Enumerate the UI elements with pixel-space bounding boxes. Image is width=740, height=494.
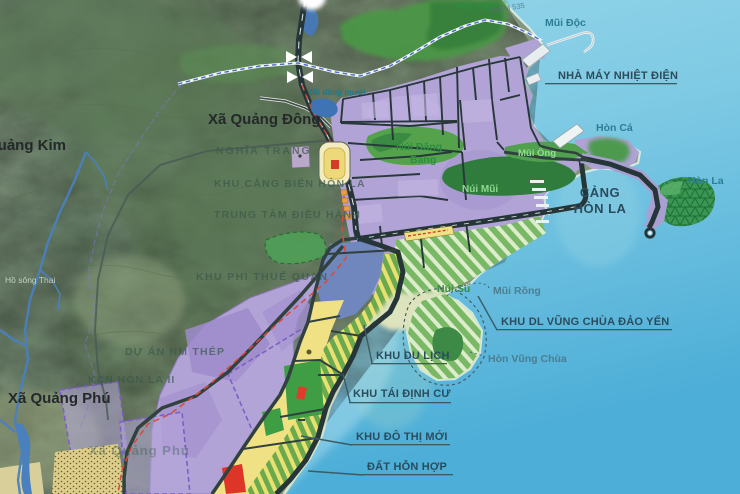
svg-text:KHU CẢNG BIỂN HÒN LA: KHU CẢNG BIỂN HÒN LA: [214, 177, 366, 190]
svg-text:KHU DL VŨNG CHÙA ĐẢO YẾN: KHU DL VŨNG CHÙA ĐẢO YẾN: [501, 315, 669, 328]
svg-text:KCN HÒN LA II: KCN HÒN LA II: [88, 373, 175, 386]
svg-text:Quảng Kim: Quảng Kim: [0, 137, 66, 154]
svg-text:ĐẤT HỖN HỢP: ĐẤT HỖN HỢP: [367, 460, 447, 473]
svg-text:Hòn Vũng Chùa: Hòn Vũng Chùa: [488, 353, 567, 365]
svg-text:Mũi Độc: Mũi Độc: [545, 17, 586, 29]
svg-text:DỰ ÁN NM THÉP: DỰ ÁN NM THÉP: [125, 345, 225, 358]
svg-text:CẢNG: CẢNG: [580, 185, 620, 200]
svg-text:KHU DU LỊCH: KHU DU LỊCH: [376, 350, 450, 362]
svg-text:Hồ sông Thai: Hồ sông Thai: [5, 275, 56, 285]
svg-text:NHÀ MÁY NHIỆT ĐIỆN: NHÀ MÁY NHIỆT ĐIỆN: [558, 69, 678, 82]
svg-text:Núi Đăng: Núi Đăng: [396, 141, 442, 153]
svg-text:Bang: Bang: [410, 154, 436, 166]
svg-text:Mũi Ông: Mũi Ông: [518, 147, 556, 159]
svg-text:Hòn Cá: Hòn Cá: [596, 122, 633, 134]
svg-text:NGHĨA TRANG: NGHĨA TRANG: [216, 144, 312, 157]
svg-text:Mũi Rồng: Mũi Rồng: [493, 285, 541, 297]
svg-text:KHU TÁI ĐỊNH CƯ: KHU TÁI ĐỊNH CƯ: [353, 387, 451, 400]
svg-text:Xã Quảng Đông: Xã Quảng Đông: [208, 111, 321, 128]
svg-text:HÒN LA: HÒN LA: [574, 201, 627, 216]
svg-text:Xã Quảng Phủ: Xã Quảng Phủ: [89, 443, 190, 458]
svg-text:Núi Hậu: Núi Hậu: [456, 0, 496, 12]
svg-text:Hòn La: Hòn La: [688, 175, 724, 187]
svg-text:Núi Mũi: Núi Mũi: [462, 184, 498, 195]
svg-text:KHU ĐÔ THỊ MỚI: KHU ĐÔ THỊ MỚI: [356, 430, 448, 443]
svg-text:Xã Quảng Phú: Xã Quảng Phú: [8, 390, 111, 407]
svg-text:Hồ đồng mười: Hồ đồng mười: [309, 88, 366, 97]
svg-text:KHU PHI THUẾ QUAN: KHU PHI THUẾ QUAN: [196, 270, 328, 283]
svg-text:TRUNG TÂM ĐIỀU HÀNH: TRUNG TÂM ĐIỀU HÀNH: [214, 208, 361, 221]
